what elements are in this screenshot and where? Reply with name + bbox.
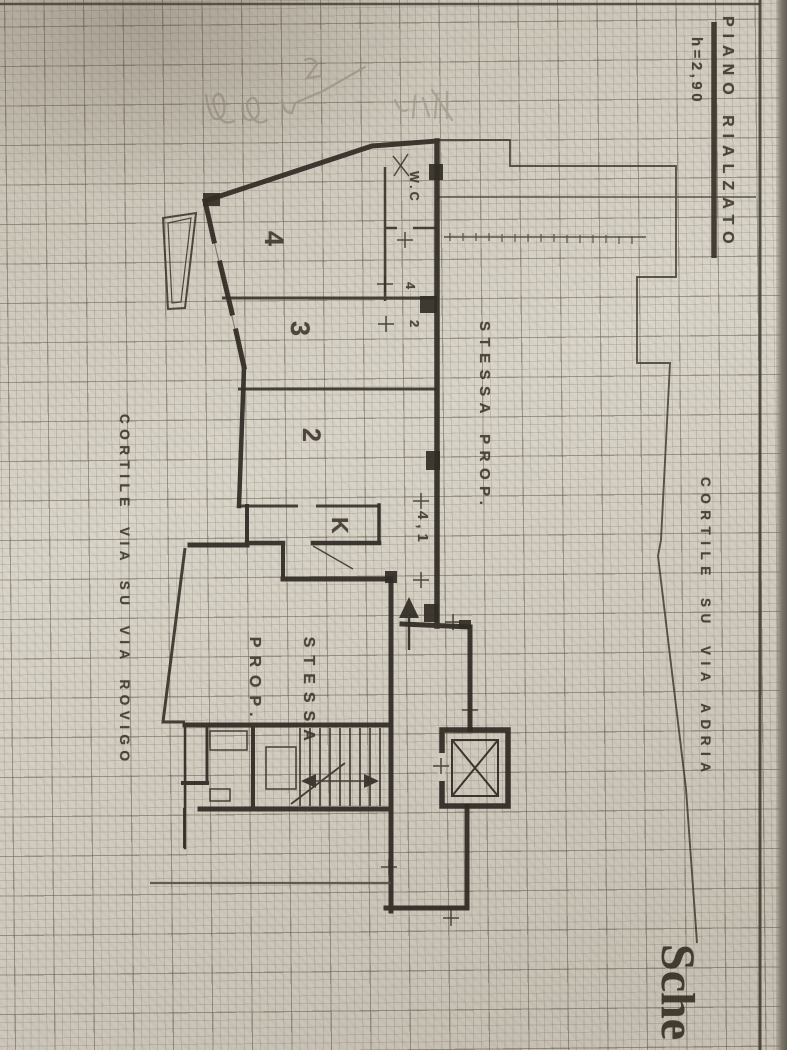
elevator-shaft [438, 730, 508, 806]
same-property-line2: PROP. [246, 637, 263, 725]
balcony [163, 213, 196, 309]
room-label-kitchen: K [328, 517, 352, 534]
courtyard-label-right: CORTILE SU VIA ADRIA [698, 477, 712, 779]
same-property-line1: STESSA [300, 637, 317, 749]
corridor-mark-upper: 4 [403, 282, 417, 289]
same-property-label-lower: STESSA PROP. [214, 587, 349, 749]
same-property-label-center: STESSA PROP. [476, 321, 492, 511]
wc-label: W.C [407, 171, 420, 204]
courtyard-label-left: CORTILE VIA SU VIA ROVIGO [117, 414, 131, 767]
paper-edge-shadow [776, 0, 787, 1050]
entry-width-dimension: 4,1 [414, 511, 430, 547]
floor-height-label: h=2,90 [688, 37, 704, 105]
pencil-annotation [206, 59, 452, 123]
corner-caption: Sche [652, 944, 702, 1040]
room-label-2: 2 [298, 428, 324, 442]
room-label-4: 4 [260, 231, 288, 246]
floor-title: PIANO RIALZATO [718, 16, 735, 251]
scanned-floor-plan-page: PIANO RIALZATO h=2,90 CORTILE SU VIA ADR… [0, 0, 787, 1050]
corridor-mark-lower: 2 [407, 320, 421, 327]
walls-partition [150, 167, 437, 883]
room-label-3: 3 [286, 321, 314, 336]
